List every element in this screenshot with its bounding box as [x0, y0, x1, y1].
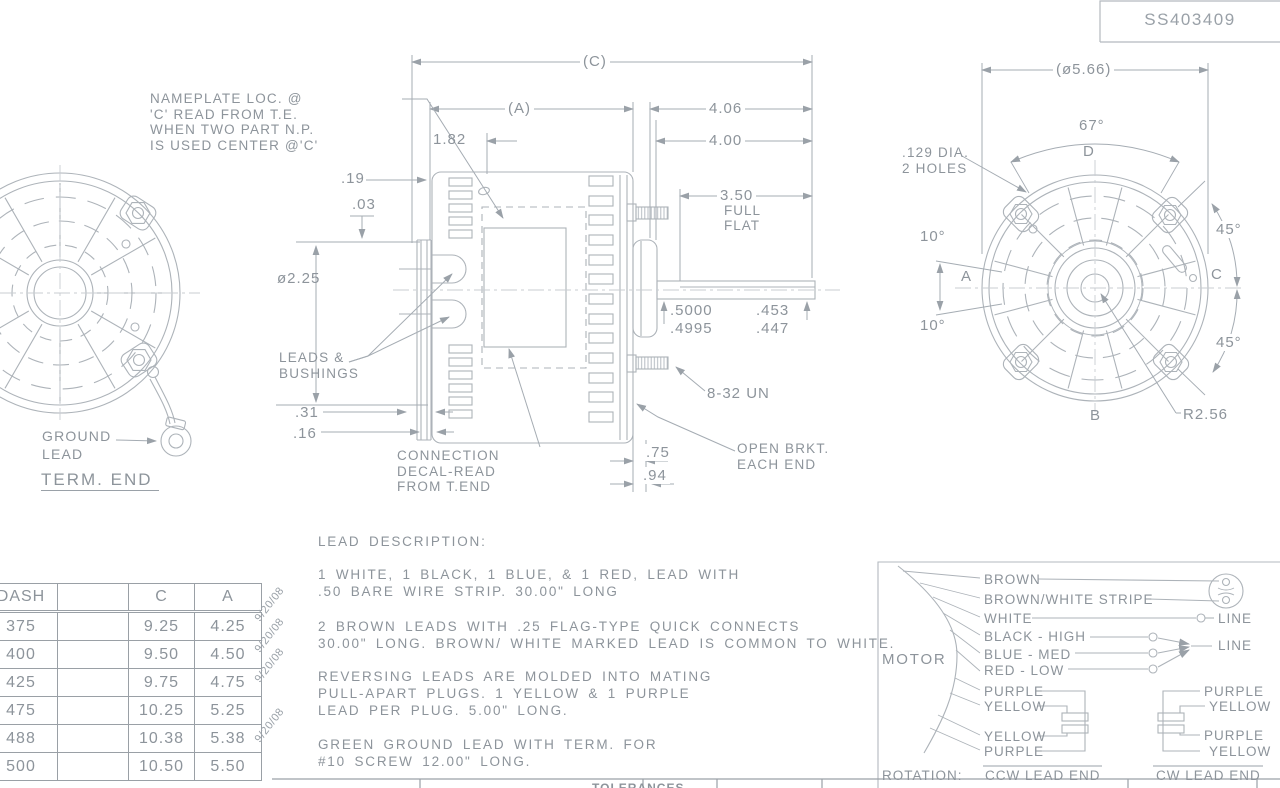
ground-lead-label: GROUND LEAD: [42, 427, 111, 463]
lead-purple-2: PURPLE: [984, 744, 1044, 759]
radius-callout: R2.56: [1183, 406, 1228, 423]
dim-03: .03: [352, 196, 376, 213]
shaft-flat-dim: .453 .447: [756, 302, 789, 338]
shaft-dia-dim: .5000 .4995: [670, 302, 713, 338]
nameplate-note: NAMEPLATE LOC. @ 'C' READ FROM T.E. WHEN…: [150, 91, 318, 153]
lead-description-title: LEAD DESCRIPTION:: [318, 533, 487, 550]
angle-45-bottom: 45°: [1213, 334, 1245, 351]
full-flat-label: FULL FLAT: [724, 203, 761, 233]
label-c: C: [1211, 266, 1223, 283]
lead-end-dimensions: [936, 63, 1237, 413]
lead-red-low: RED - LOW: [984, 663, 1064, 678]
lead-description-p3: REVERSING LEADS ARE MOLDED INTO MATING P…: [318, 668, 712, 719]
dim-1-82: 1.82: [433, 131, 466, 148]
rotation-label: ROTATION:: [882, 768, 963, 783]
stud-bottom: [636, 357, 668, 369]
dim-c: (C): [580, 53, 610, 70]
term-end-view: [0, 173, 191, 456]
line-label-2: LINE: [1218, 638, 1252, 653]
angle-10-bottom: 10°: [920, 317, 946, 334]
vent-slots-right: [589, 176, 613, 422]
dim-dia-2-25: ø2.25: [277, 270, 320, 287]
col-blank: [58, 584, 129, 612]
open-bracket-note: OPEN BRKT. EACH END: [737, 441, 829, 472]
lead-description-p4: GREEN GROUND LEAD WITH TERM. FOR #10 SCR…: [318, 736, 657, 770]
table-row: 4009.504.50: [0, 641, 262, 669]
cw-lead-purple-2: PURPLE: [1204, 728, 1264, 743]
title-block-edge: [272, 779, 1280, 788]
lead-end-centerlines: [955, 160, 1242, 412]
connection-decal-note: CONNECTION DECAL-READ FROM T.END: [397, 448, 500, 495]
vent-slots-left: [449, 178, 472, 418]
dim-4-06: 4.06: [706, 100, 745, 117]
term-end-title: TERM. END: [41, 472, 159, 491]
line-label-1: LINE: [1218, 611, 1252, 626]
dim-3-50: 3.50: [717, 187, 756, 204]
lead-brown-white: BROWN/WHITE STRIPE: [984, 592, 1154, 607]
nameplate: [484, 228, 566, 347]
holes-note: .129 DIA. 2 HOLES: [902, 145, 969, 176]
table-row: 48810.385.38: [0, 725, 262, 753]
lead-white: WHITE: [984, 611, 1033, 626]
dim-31: .31: [295, 404, 319, 421]
cw-lead-purple-1: PURPLE: [1204, 684, 1264, 699]
col-c: C: [129, 584, 195, 612]
tolerances-label: TOLERANCES: [592, 781, 684, 788]
drawing-sheet: SS403409 GROUND LEAD TERM. END NAMEPLATE…: [0, 0, 1280, 788]
table-row: 50010.505.50: [0, 753, 262, 781]
angle-67: 67°: [1076, 117, 1108, 134]
thread-callout: 8-32 UN: [707, 385, 770, 402]
ccw-lead-end-label: CCW LEAD END: [985, 768, 1101, 783]
motor-label: MOTOR: [882, 651, 947, 668]
lead-purple-1: PURPLE: [984, 684, 1044, 699]
table-row: 4259.754.75: [0, 669, 262, 697]
table-header-row: DASH C A: [0, 584, 262, 612]
dim-a: (A): [505, 100, 534, 117]
part-number: SS403409: [1100, 10, 1280, 30]
dim-16: .16: [293, 425, 317, 442]
cw-lead-yellow-1: YELLOW: [1209, 699, 1271, 714]
lead-description-p1: 1 WHITE, 1 BLACK, 1 BLUE, & 1 RED, LEAD …: [318, 566, 740, 600]
lead-brown: BROWN: [984, 572, 1041, 587]
label-d: D: [1083, 143, 1095, 160]
lead-black-high: BLACK - HIGH: [984, 629, 1086, 644]
lead-description-p2: 2 BROWN LEADS WITH .25 FLAG-TYPE QUICK C…: [318, 618, 895, 652]
col-a: A: [195, 584, 262, 612]
col-dash: DASH: [0, 584, 58, 612]
dash-table: DASH C A 3759.254.25 4009.504.50 4259.75…: [0, 583, 262, 781]
lead-yellow-1: YELLOW: [984, 699, 1046, 714]
connection-decal: [482, 207, 586, 368]
stud-top: [636, 207, 668, 219]
lead-yellow-2: YELLOW: [984, 729, 1046, 744]
label-a: A: [961, 268, 972, 285]
angle-10-top: 10°: [920, 228, 946, 245]
lead-blue-med: BLUE - MED: [984, 647, 1071, 662]
dim-19: .19: [341, 170, 365, 187]
table-row: 3759.254.25: [0, 612, 262, 641]
dim-94: .94: [640, 467, 670, 484]
cw-lead-end-label: CW LEAD END: [1156, 768, 1261, 783]
dim-dia-5-66: (ø5.66): [1053, 61, 1114, 78]
angle-45-top: 45°: [1213, 221, 1245, 238]
label-b: B: [1090, 407, 1101, 424]
cw-lead-yellow-2: YELLOW: [1209, 744, 1271, 759]
table-row: 47510.255.25: [0, 697, 262, 725]
dim-75: .75: [643, 444, 673, 461]
leads-bushings-label: LEADS & BUSHINGS: [279, 350, 359, 381]
dim-4-00: 4.00: [706, 132, 745, 149]
